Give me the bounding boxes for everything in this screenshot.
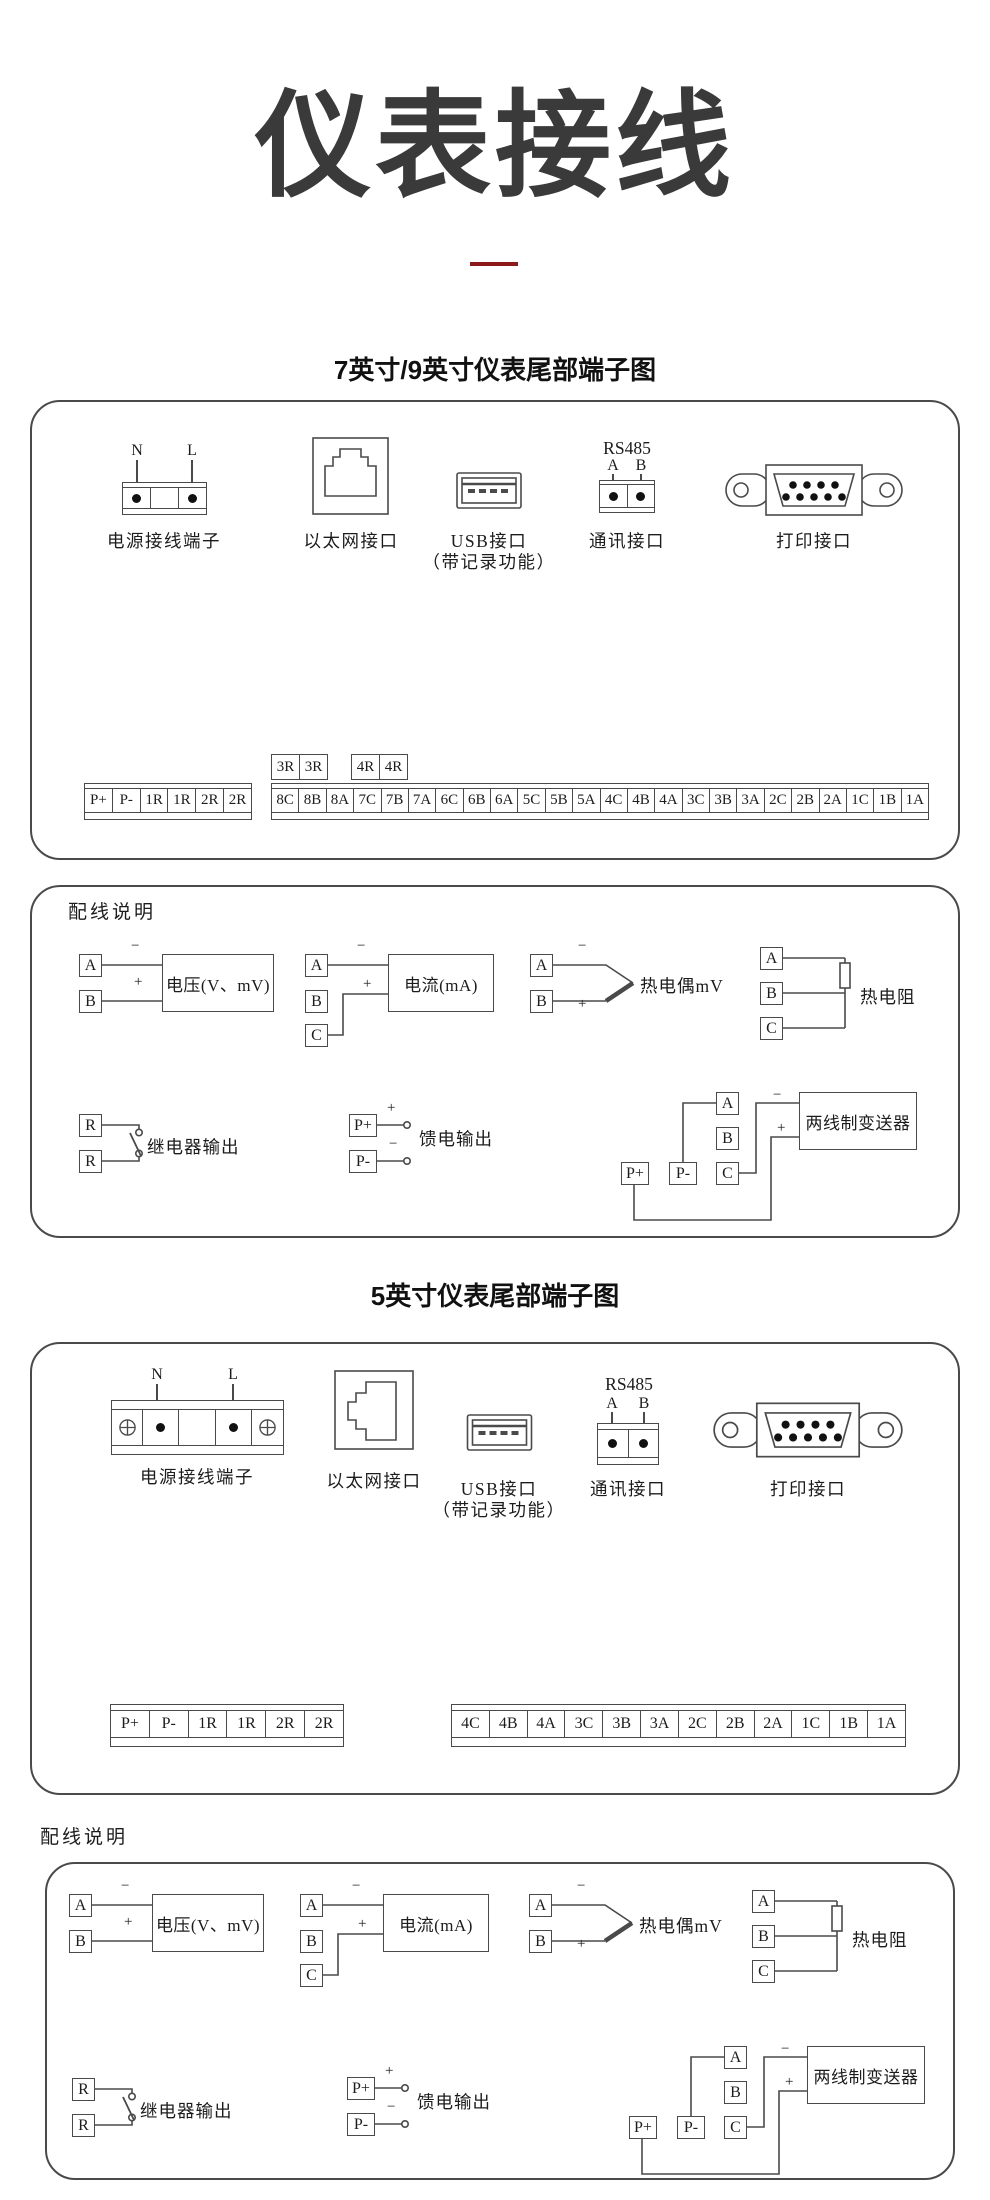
usb-port-icon bbox=[456, 472, 522, 509]
thermocouple-label: 热电偶mV bbox=[640, 973, 724, 998]
terminal-cell: 2R bbox=[224, 789, 251, 812]
terminal-c: C bbox=[305, 1024, 328, 1047]
rs485-terminal-icon bbox=[599, 480, 655, 513]
section-title-5: 5英寸仪表尾部端子图 bbox=[0, 1276, 990, 1313]
ethernet-label: 以太网接口 bbox=[304, 528, 399, 553]
terminal-strip-left: P+P-1R1R2R2R bbox=[84, 783, 252, 820]
terminal-cell: 7C bbox=[354, 789, 381, 812]
wiring-panel-7-9: 配线说明 − + A B 电压(V、mV) − + A B C 电流(mA) bbox=[30, 885, 960, 1238]
voltage-box: 电压(V、mV) bbox=[152, 1894, 264, 1952]
terminal-cell: 8A bbox=[327, 789, 354, 812]
power-cell bbox=[123, 488, 151, 508]
relay-label: 继电器输出 bbox=[147, 1134, 240, 1159]
terminal-cell: 1A bbox=[868, 1711, 905, 1737]
terminal-p-plus: P+ bbox=[347, 2077, 375, 2100]
thermocouple-diagram: − + A B 热电偶mV bbox=[530, 938, 735, 1033]
terminal-cell: 2A bbox=[755, 1711, 793, 1737]
strip-rail bbox=[452, 1737, 905, 1746]
usb-sublabel: （带记录功能） bbox=[423, 549, 556, 574]
terminal-cell: 1A bbox=[902, 789, 928, 812]
power-cell bbox=[151, 488, 179, 508]
polarity-plus: + bbox=[387, 1100, 395, 1117]
power-pin-n-label: N bbox=[128, 442, 146, 460]
terminal-cell: P+ bbox=[111, 1711, 150, 1737]
transmitter-box: 两线制变送器 bbox=[807, 2046, 925, 2104]
terminal-a: A bbox=[716, 1092, 739, 1115]
current-box: 电流(mA) bbox=[383, 1894, 489, 1952]
power-cell bbox=[179, 488, 206, 508]
terminal-p-plus: P+ bbox=[349, 1114, 377, 1137]
rs485-cells bbox=[600, 485, 654, 507]
terminal-r: R bbox=[79, 1150, 102, 1173]
terminal-c: C bbox=[300, 1964, 323, 1987]
rs485-pin-a-label: A bbox=[603, 1395, 621, 1413]
terminal-p-minus: P- bbox=[349, 1150, 377, 1173]
rs485-pin-b-label: B bbox=[635, 1395, 653, 1413]
terminal-b: B bbox=[724, 2081, 747, 2104]
terminal-dot bbox=[609, 492, 618, 501]
polarity-minus: − bbox=[389, 1136, 397, 1153]
terminal-cell: 1C bbox=[792, 1711, 830, 1737]
strip-rail bbox=[112, 1401, 283, 1410]
terminal-dot bbox=[636, 492, 645, 501]
terminal-b: B bbox=[529, 1930, 552, 1953]
terminal-cell: 3C bbox=[565, 1711, 603, 1737]
terminal-cell: 8C bbox=[272, 789, 299, 812]
polarity-minus: − bbox=[352, 1878, 360, 1895]
strip-rail bbox=[272, 812, 928, 819]
power-terminal-label: 电源接线端子 bbox=[107, 528, 221, 553]
terminal-cell: 4A bbox=[528, 1711, 566, 1737]
strip-rail bbox=[598, 1457, 658, 1464]
feed-output-diagram: + − P+ P- 馈电输出 bbox=[347, 2061, 522, 2136]
ethernet-port-icon bbox=[312, 437, 389, 515]
red-divider bbox=[470, 262, 518, 266]
terminal-cell: P- bbox=[113, 789, 141, 812]
terminal-cell: 2C bbox=[765, 789, 792, 812]
terminal-dot bbox=[156, 1423, 165, 1432]
terminal-p-plus: P+ bbox=[629, 2116, 657, 2139]
polarity-minus: − bbox=[577, 1878, 585, 1895]
db9-print-port-icon bbox=[712, 1402, 904, 1458]
terminal-r: R bbox=[79, 1114, 102, 1137]
polarity-plus: + bbox=[134, 974, 142, 991]
terminal-cells: 8C8B8A7C7B7A6C6B6A5C5B5A4C4B4A3C3B3A2C2B… bbox=[272, 789, 928, 812]
terminal-cell: 4C bbox=[452, 1711, 490, 1737]
terminal-strip-main: 8C8B8A7C7B7A6C6B6A5C5B5A4C4B4A3C3B3A2C2B… bbox=[271, 783, 929, 820]
strip-rail bbox=[85, 812, 251, 819]
terminal-dot bbox=[229, 1423, 238, 1432]
terminal-p-minus: P- bbox=[677, 2116, 705, 2139]
terminal-c: C bbox=[716, 1162, 739, 1185]
terminal-dot bbox=[608, 1439, 617, 1448]
terminal-panel-7-9: N L 电源接线端子 以太网接口 USB接口 （带记录功能） bbox=[30, 400, 960, 860]
terminal-cell: 3A bbox=[641, 1711, 679, 1737]
wiring-note-title: 配线说明 bbox=[68, 897, 156, 924]
rs485-cells bbox=[598, 1430, 658, 1457]
relay-label: 继电器输出 bbox=[140, 2098, 233, 2123]
terminal-cell: 2B bbox=[792, 789, 819, 812]
terminal-cell: 2A bbox=[820, 789, 847, 812]
terminal-dot bbox=[639, 1439, 648, 1448]
terminal-p-plus: P+ bbox=[621, 1162, 649, 1185]
terminal-a: A bbox=[300, 1894, 323, 1917]
power-pin-l-label: L bbox=[183, 442, 201, 460]
terminal-a: A bbox=[529, 1894, 552, 1917]
terminal-cell: 2R bbox=[305, 1711, 343, 1737]
terminal-cell: 2R bbox=[196, 789, 224, 812]
rs485-terminal-icon bbox=[597, 1423, 659, 1465]
terminal-panel-5: N L 电源接线端子 以太网接口 bbox=[30, 1342, 960, 1795]
terminal-b: B bbox=[752, 1925, 775, 1948]
voltage-box: 电压(V、mV) bbox=[162, 954, 274, 1012]
power-terminal-icon bbox=[111, 1400, 284, 1455]
current-input-diagram: − + A B C 电流(mA) bbox=[300, 1878, 545, 2008]
rs485-pin-a-label: A bbox=[604, 457, 622, 475]
terminal-cell: 3A bbox=[737, 789, 764, 812]
relay-output-diagram: R R 继电器输出 bbox=[72, 2076, 247, 2151]
print-label: 打印接口 bbox=[776, 528, 852, 553]
terminal-b: B bbox=[300, 1930, 323, 1953]
terminal-cells: 4R4R bbox=[352, 755, 407, 779]
usb-sublabel: （带记录功能） bbox=[433, 1497, 566, 1522]
terminal-b: B bbox=[716, 1127, 739, 1150]
terminal-cell: 4B bbox=[490, 1711, 528, 1737]
terminal-cell: P+ bbox=[85, 789, 113, 812]
terminal-cell: 6B bbox=[464, 789, 491, 812]
comm-label: 通讯接口 bbox=[590, 1476, 666, 1501]
terminal-dot bbox=[132, 494, 141, 503]
terminal-strip-main: 4C4B4A3C3B3A2C2B2A1C1B1A bbox=[451, 1704, 906, 1747]
terminal-cell: 6A bbox=[491, 789, 518, 812]
terminal-cell: 1R bbox=[168, 789, 196, 812]
rtd-diagram: A B C 热电阻 bbox=[752, 1885, 942, 1995]
terminal-a: A bbox=[69, 1894, 92, 1917]
db9-print-port-icon bbox=[724, 464, 904, 516]
terminal-b: B bbox=[69, 1930, 92, 1953]
current-box: 电流(mA) bbox=[388, 954, 494, 1012]
terminal-a: A bbox=[79, 954, 102, 977]
terminal-cell: 1R bbox=[141, 789, 169, 812]
power-terminal-icon bbox=[122, 482, 207, 515]
polarity-plus: + bbox=[577, 1936, 585, 1953]
terminal-a: A bbox=[530, 954, 553, 977]
ethernet-label: 以太网接口 bbox=[327, 1468, 422, 1493]
terminal-cell: 7B bbox=[382, 789, 409, 812]
terminal-cell: 4R bbox=[380, 755, 407, 779]
terminal-cell: 1B bbox=[874, 789, 901, 812]
terminal-r: R bbox=[72, 2078, 95, 2101]
page: 仪表接线 7英寸/9英寸仪表尾部端子图 N L 电源接线端子 以太网接口 bbox=[0, 0, 990, 2200]
terminal-a: A bbox=[305, 954, 328, 977]
polarity-plus: + bbox=[124, 1914, 132, 1931]
terminal-cell: 2C bbox=[679, 1711, 717, 1737]
rs485-cell bbox=[598, 1430, 629, 1457]
polarity-plus: + bbox=[578, 996, 586, 1013]
relay-output-diagram: R R 继电器输出 bbox=[79, 1112, 254, 1187]
wiring-panel-5: − + A B 电压(V、mV) − + A B C 电流(mA) − + A … bbox=[45, 1862, 955, 2180]
thermocouple-label: 热电偶mV bbox=[639, 1913, 723, 1938]
power-cell bbox=[216, 1410, 252, 1445]
terminal-b: B bbox=[79, 990, 102, 1013]
rs485-cell bbox=[629, 1430, 659, 1457]
terminal-strip-3r: 3R3R bbox=[271, 754, 328, 780]
comm-label: 通讯接口 bbox=[589, 528, 665, 553]
terminal-cell: 1R bbox=[227, 1711, 266, 1737]
terminal-a: A bbox=[752, 1890, 775, 1913]
rs485-pin-b-label: B bbox=[632, 457, 650, 475]
polarity-minus: − bbox=[387, 2099, 395, 2116]
strip-rail bbox=[123, 508, 206, 514]
terminal-p-minus: P- bbox=[347, 2113, 375, 2136]
rs485-cell bbox=[628, 485, 655, 507]
rs485-cell bbox=[600, 485, 628, 507]
terminal-cell: 4C bbox=[601, 789, 628, 812]
power-terminal-label: 电源接线端子 bbox=[140, 1464, 254, 1489]
power-cell bbox=[143, 1410, 179, 1445]
polarity-plus: + bbox=[363, 976, 371, 993]
terminal-cell: 4R bbox=[352, 755, 380, 779]
terminal-cell: 5C bbox=[518, 789, 545, 812]
polarity-plus: + bbox=[777, 1120, 785, 1137]
terminal-r: R bbox=[72, 2114, 95, 2137]
terminal-cells: 3R3R bbox=[272, 755, 327, 779]
strip-rail bbox=[600, 507, 654, 512]
terminal-dot bbox=[188, 494, 197, 503]
voltage-input-diagram: − + A B 电压(V、mV) bbox=[69, 1878, 314, 1973]
usb-port-icon bbox=[464, 1414, 535, 1451]
terminal-cells: P+P-1R1R2R2R bbox=[85, 789, 251, 812]
strip-rail bbox=[111, 1737, 343, 1746]
polarity-minus: − bbox=[781, 2041, 789, 2058]
polarity-minus: − bbox=[773, 1087, 781, 1104]
terminal-c: C bbox=[760, 1017, 783, 1040]
terminal-cell: 8B bbox=[299, 789, 326, 812]
terminal-a: A bbox=[760, 947, 783, 970]
terminal-cell: 2R bbox=[266, 1711, 305, 1737]
polarity-minus: − bbox=[357, 938, 365, 955]
section-title-7-9: 7英寸/9英寸仪表尾部端子图 bbox=[0, 350, 990, 387]
power-cells bbox=[112, 1410, 283, 1445]
terminal-cell: 2B bbox=[717, 1711, 755, 1737]
thermocouple-diagram: − + A B 热电偶mV bbox=[529, 1878, 734, 1973]
terminal-cell: 1B bbox=[830, 1711, 868, 1737]
terminal-cells: P+P-1R1R2R2R bbox=[111, 1711, 343, 1737]
power-cells bbox=[123, 488, 206, 508]
terminal-cell: 6C bbox=[436, 789, 463, 812]
terminal-a: A bbox=[724, 2046, 747, 2069]
voltage-input-diagram: − + A B 电压(V、mV) bbox=[79, 938, 324, 1033]
ethernet-port-icon bbox=[334, 1370, 414, 1450]
terminal-cell: 5B bbox=[546, 789, 573, 812]
wiring-note-title: 配线说明 bbox=[40, 1822, 128, 1849]
power-cell bbox=[179, 1410, 215, 1445]
terminal-b: B bbox=[530, 990, 553, 1013]
terminal-cell: 1C bbox=[847, 789, 874, 812]
terminal-cell: 3B bbox=[710, 789, 737, 812]
rtd-label: 热电阻 bbox=[852, 1927, 908, 1952]
terminal-c: C bbox=[752, 1960, 775, 1983]
terminal-c: C bbox=[724, 2116, 747, 2139]
polarity-plus: + bbox=[785, 2074, 793, 2091]
terminal-cell: 7A bbox=[409, 789, 436, 812]
screw-icon bbox=[118, 1418, 137, 1437]
screw-icon bbox=[258, 1418, 277, 1437]
polarity-plus: + bbox=[385, 2063, 393, 2080]
terminal-cell: 3R bbox=[272, 755, 300, 779]
terminal-b: B bbox=[305, 990, 328, 1013]
rtd-label: 热电阻 bbox=[860, 984, 916, 1009]
transmitter-box: 两线制变送器 bbox=[799, 1092, 917, 1150]
terminal-cell: 5A bbox=[573, 789, 600, 812]
polarity-plus: + bbox=[358, 1916, 366, 1933]
screw-cell bbox=[252, 1410, 283, 1445]
current-input-diagram: − + A B C 电流(mA) bbox=[305, 938, 550, 1068]
screw-cell bbox=[112, 1410, 143, 1445]
polarity-minus: − bbox=[131, 938, 139, 955]
terminal-cell: 4A bbox=[655, 789, 682, 812]
feed-label: 馈电输出 bbox=[419, 1126, 493, 1151]
terminal-cell: P- bbox=[150, 1711, 189, 1737]
terminal-strip-left: P+P-1R1R2R2R bbox=[110, 1704, 344, 1747]
strip-rail bbox=[112, 1445, 283, 1454]
terminal-cells: 4C4B4A3C3B3A2C2B2A1C1B1A bbox=[452, 1711, 905, 1737]
feed-label: 馈电输出 bbox=[417, 2089, 491, 2114]
transmitter-diagram: − + A B C P+ P- 两线制变送器 bbox=[621, 1087, 921, 1227]
power-pin-n-label: N bbox=[148, 1366, 166, 1384]
feed-output-diagram: + − P+ P- 馈电输出 bbox=[349, 1098, 524, 1173]
rs485-title: RS485 bbox=[603, 438, 651, 459]
polarity-minus: − bbox=[578, 938, 586, 955]
terminal-cell: 1R bbox=[189, 1711, 228, 1737]
page-title: 仪表接线 bbox=[0, 80, 990, 213]
terminal-b: B bbox=[760, 982, 783, 1005]
rtd-diagram: A B C 热电阻 bbox=[760, 942, 950, 1052]
terminal-cell: 4B bbox=[628, 789, 655, 812]
wiring-lines bbox=[760, 942, 950, 1052]
polarity-minus: − bbox=[121, 1878, 129, 1895]
terminal-strip-4r: 4R4R bbox=[351, 754, 408, 780]
transmitter-diagram: − + A B C P+ P- 两线制变送器 bbox=[629, 2041, 929, 2181]
terminal-cell: 3R bbox=[300, 755, 327, 779]
power-pin-l-label: L bbox=[224, 1366, 242, 1384]
terminal-cell: 3B bbox=[603, 1711, 641, 1737]
print-label: 打印接口 bbox=[770, 1476, 846, 1501]
terminal-cell: 3C bbox=[683, 789, 710, 812]
terminal-p-minus: P- bbox=[669, 1162, 697, 1185]
rs485-title: RS485 bbox=[605, 1374, 653, 1395]
wiring-lines bbox=[752, 1885, 942, 1995]
